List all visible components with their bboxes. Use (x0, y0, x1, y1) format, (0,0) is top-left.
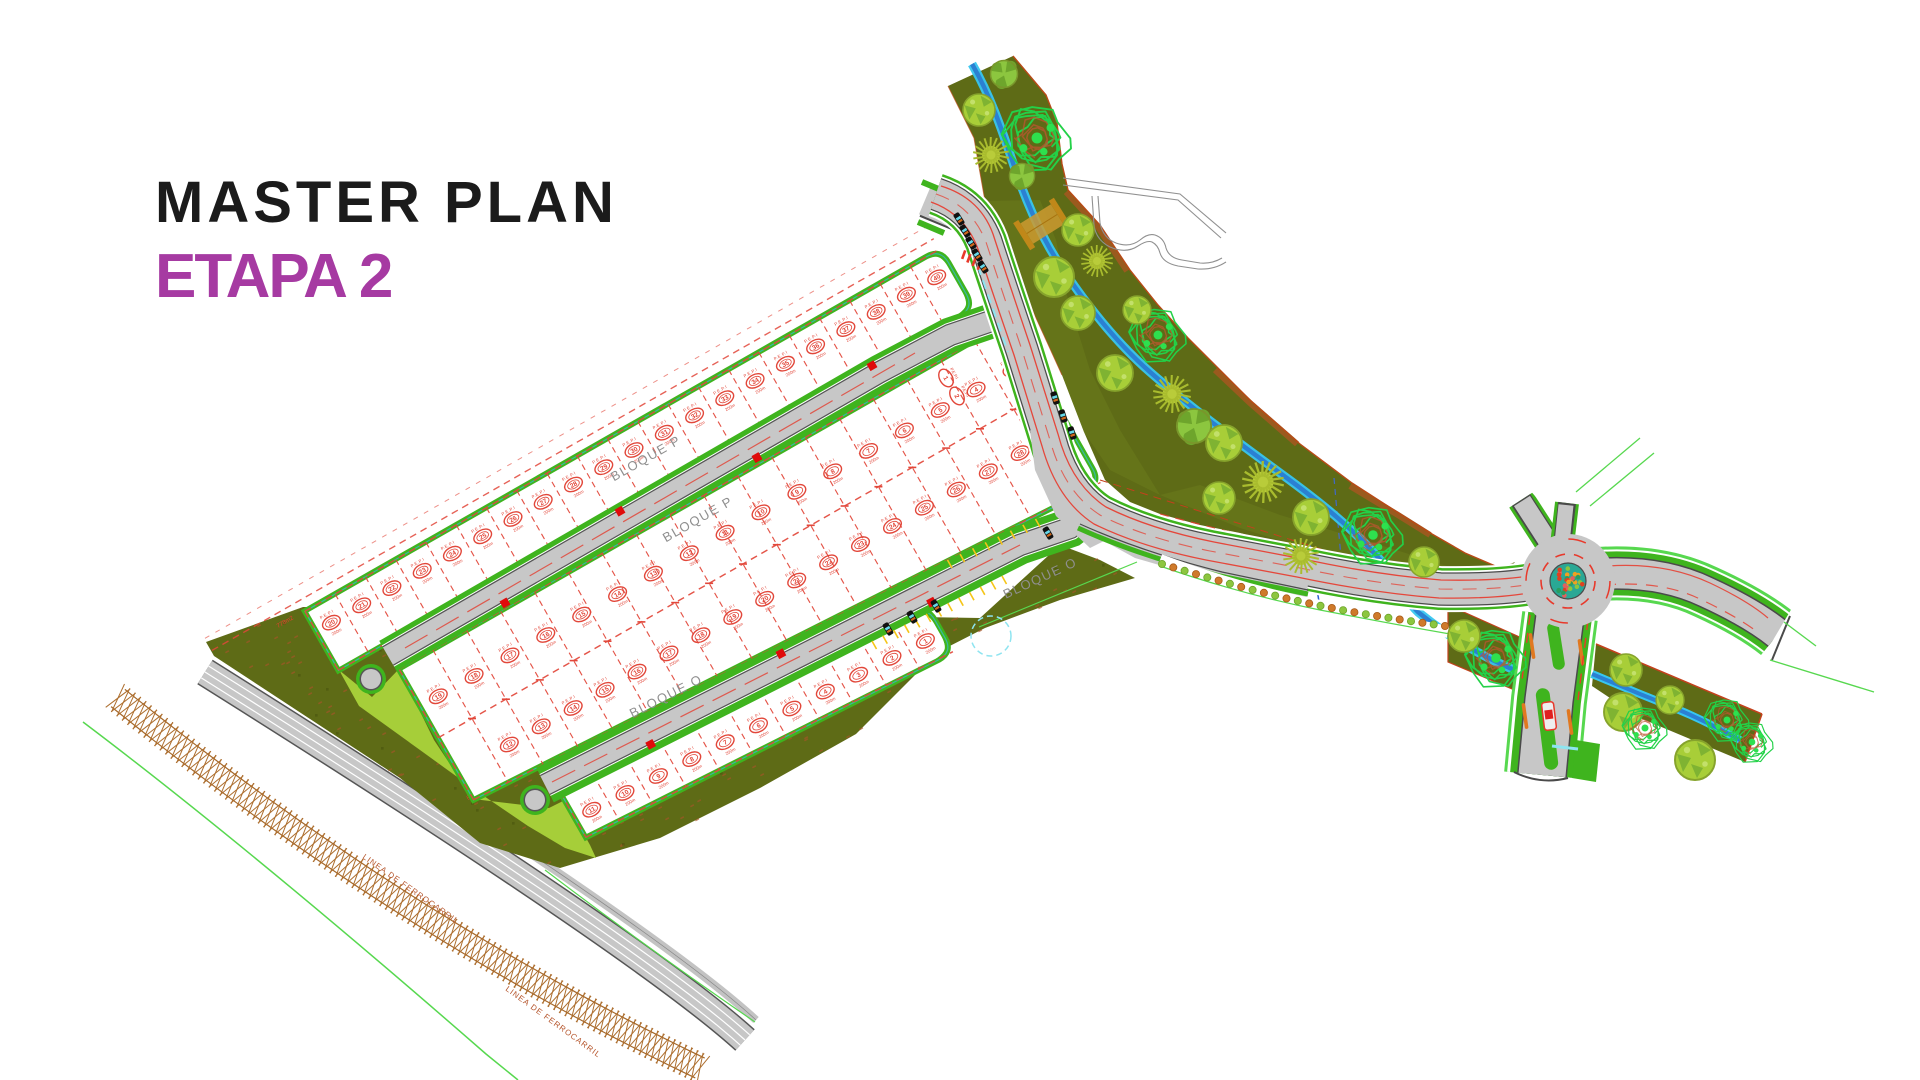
svg-text:ETAPA 2: ETAPA 2 (155, 242, 391, 311)
svg-text:MASTER PLAN: MASTER PLAN (155, 170, 618, 235)
